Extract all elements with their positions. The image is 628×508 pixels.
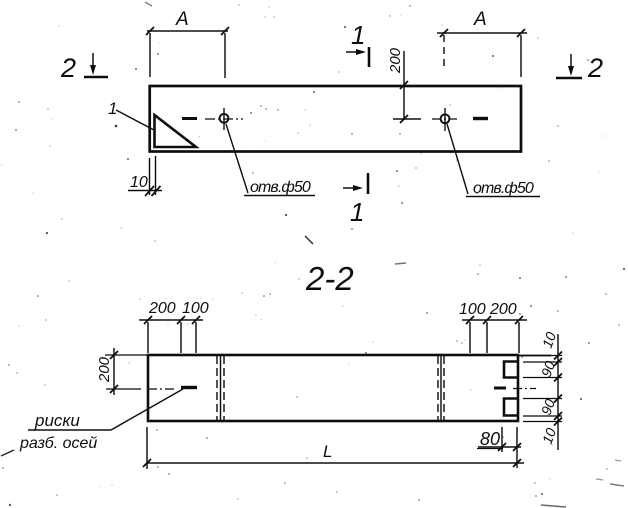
svg-text:разб. осей: разб. осей: [19, 435, 97, 452]
svg-text:1: 1: [351, 20, 365, 50]
svg-text:100: 100: [459, 301, 486, 318]
svg-text:2: 2: [587, 53, 603, 83]
svg-text:1: 1: [350, 197, 364, 227]
svg-text:1: 1: [108, 99, 117, 118]
svg-text:200: 200: [387, 47, 404, 74]
svg-text:100: 100: [182, 300, 209, 317]
svg-text:200: 200: [96, 356, 113, 383]
svg-text:10: 10: [130, 174, 148, 191]
svg-text:80: 80: [480, 429, 500, 449]
svg-text:2: 2: [60, 53, 76, 83]
svg-text:риски: риски: [34, 411, 80, 430]
svg-text:A: A: [473, 9, 487, 30]
svg-text:отв.ф50: отв.ф50: [473, 180, 534, 197]
svg-text:L: L: [323, 442, 332, 461]
svg-text:A: A: [175, 9, 189, 30]
svg-text:200: 200: [489, 301, 517, 318]
svg-text:2-2: 2-2: [305, 260, 354, 297]
svg-text:отв.ф50: отв.ф50: [250, 179, 311, 196]
svg-text:200: 200: [148, 300, 176, 317]
